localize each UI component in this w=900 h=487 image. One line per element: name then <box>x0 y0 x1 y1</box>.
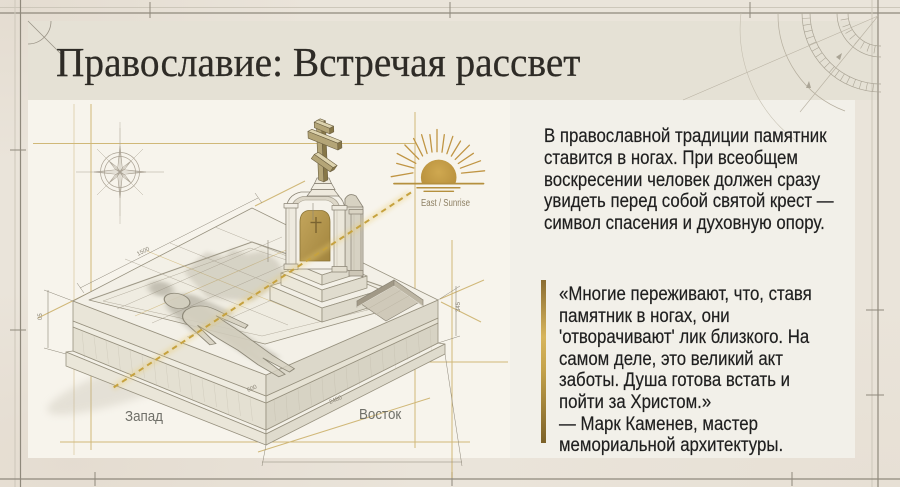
svg-text:East / Sunrise: East / Sunrise <box>421 198 470 209</box>
svg-text:05: 05 <box>38 313 44 320</box>
svg-text:345: 345 <box>456 301 462 312</box>
